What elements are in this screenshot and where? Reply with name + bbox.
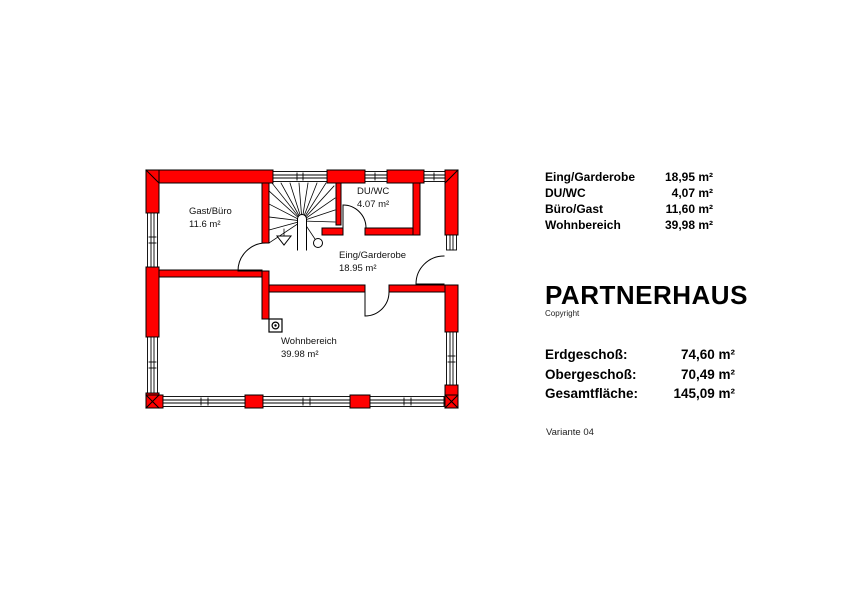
- stair-start-circle: [314, 239, 323, 248]
- room-area: 4.07 m²: [357, 199, 389, 212]
- window-entry-sidelight: [447, 235, 457, 250]
- window-left-gast: [148, 213, 158, 267]
- room-area: 39,98 m²: [665, 217, 713, 233]
- floor-plan: [140, 162, 472, 418]
- window-bottom-left: [163, 397, 245, 407]
- room-label-gast-buero: Gast/Büro 11.6 m²: [189, 206, 232, 231]
- room-area: 11.6 m²: [189, 219, 232, 232]
- room-name: Wohnbereich: [545, 217, 621, 233]
- stair-direction-arrow: [277, 236, 291, 245]
- total-label: Gesamtfläche:: [545, 384, 638, 404]
- page: { "plan": { "rooms": [ {"name": "Gast/Bü…: [0, 0, 841, 595]
- total-value: 70,49 m²: [681, 365, 735, 385]
- room-name: DU/WC: [545, 185, 586, 201]
- window-top-duwc: [365, 172, 387, 182]
- total-value: 145,09 m²: [673, 384, 735, 404]
- room-name: Büro/Gast: [545, 201, 603, 217]
- window-bottom-right: [370, 397, 444, 407]
- staircase: [269, 183, 335, 250]
- list-item: Gesamtfläche: 145,09 m²: [545, 384, 735, 404]
- list-item: Obergeschoß: 70,49 m²: [545, 365, 735, 385]
- brand-block: PARTNERHAUS Copyright: [545, 282, 748, 318]
- room-label-wohnbereich: Wohnbereich 39.98 m²: [281, 336, 337, 361]
- room-area: 4,07 m²: [672, 185, 713, 201]
- room-area: 11,60 m²: [666, 201, 713, 217]
- total-label: Erdgeschoß:: [545, 345, 628, 365]
- window-right-wohn: [447, 332, 457, 385]
- chimney-symbol: [269, 319, 282, 332]
- window-bottom-center: [263, 397, 350, 407]
- room-name: Eing/Garderobe: [339, 250, 406, 263]
- door-wohnbereich: [365, 292, 389, 316]
- list-item: Wohnbereich 39,98 m²: [545, 217, 713, 233]
- variant-label: Variante 04: [546, 427, 594, 438]
- room-label-duwc: DU/WC 4.07 m²: [357, 186, 389, 211]
- room-name: DU/WC: [357, 186, 389, 199]
- window-top-right: [424, 172, 445, 182]
- list-item: DU/WC 4,07 m²: [545, 185, 713, 201]
- room-area-list: Eing/Garderobe 18,95 m² DU/WC 4,07 m² Bü…: [545, 169, 713, 233]
- room-area: 39.98 m²: [281, 349, 337, 362]
- door-gast-buero: [238, 243, 266, 271]
- room-label-eing-garderobe: Eing/Garderobe 18.95 m²: [339, 250, 406, 275]
- room-name: Wohnbereich: [281, 336, 337, 349]
- list-item: Eing/Garderobe 18,95 m²: [545, 169, 713, 185]
- copyright-note: Copyright: [545, 309, 748, 318]
- room-area: 18,95 m²: [665, 169, 713, 185]
- room-area: 18.95 m²: [339, 263, 406, 276]
- list-item: Büro/Gast 11,60 m²: [545, 201, 713, 217]
- floor-totals: Erdgeschoß: 74,60 m² Obergeschoß: 70,49 …: [545, 345, 735, 404]
- room-name: Gast/Büro: [189, 206, 232, 219]
- window-left-wohn: [148, 337, 158, 393]
- list-item: Erdgeschoß: 74,60 m²: [545, 345, 735, 365]
- total-label: Obergeschoß:: [545, 365, 637, 385]
- total-value: 74,60 m²: [681, 345, 735, 365]
- window-top-stair: [273, 172, 327, 182]
- entry-door: [416, 256, 444, 284]
- brand-title: PARTNERHAUS: [545, 282, 748, 308]
- room-name: Eing/Garderobe: [545, 169, 635, 185]
